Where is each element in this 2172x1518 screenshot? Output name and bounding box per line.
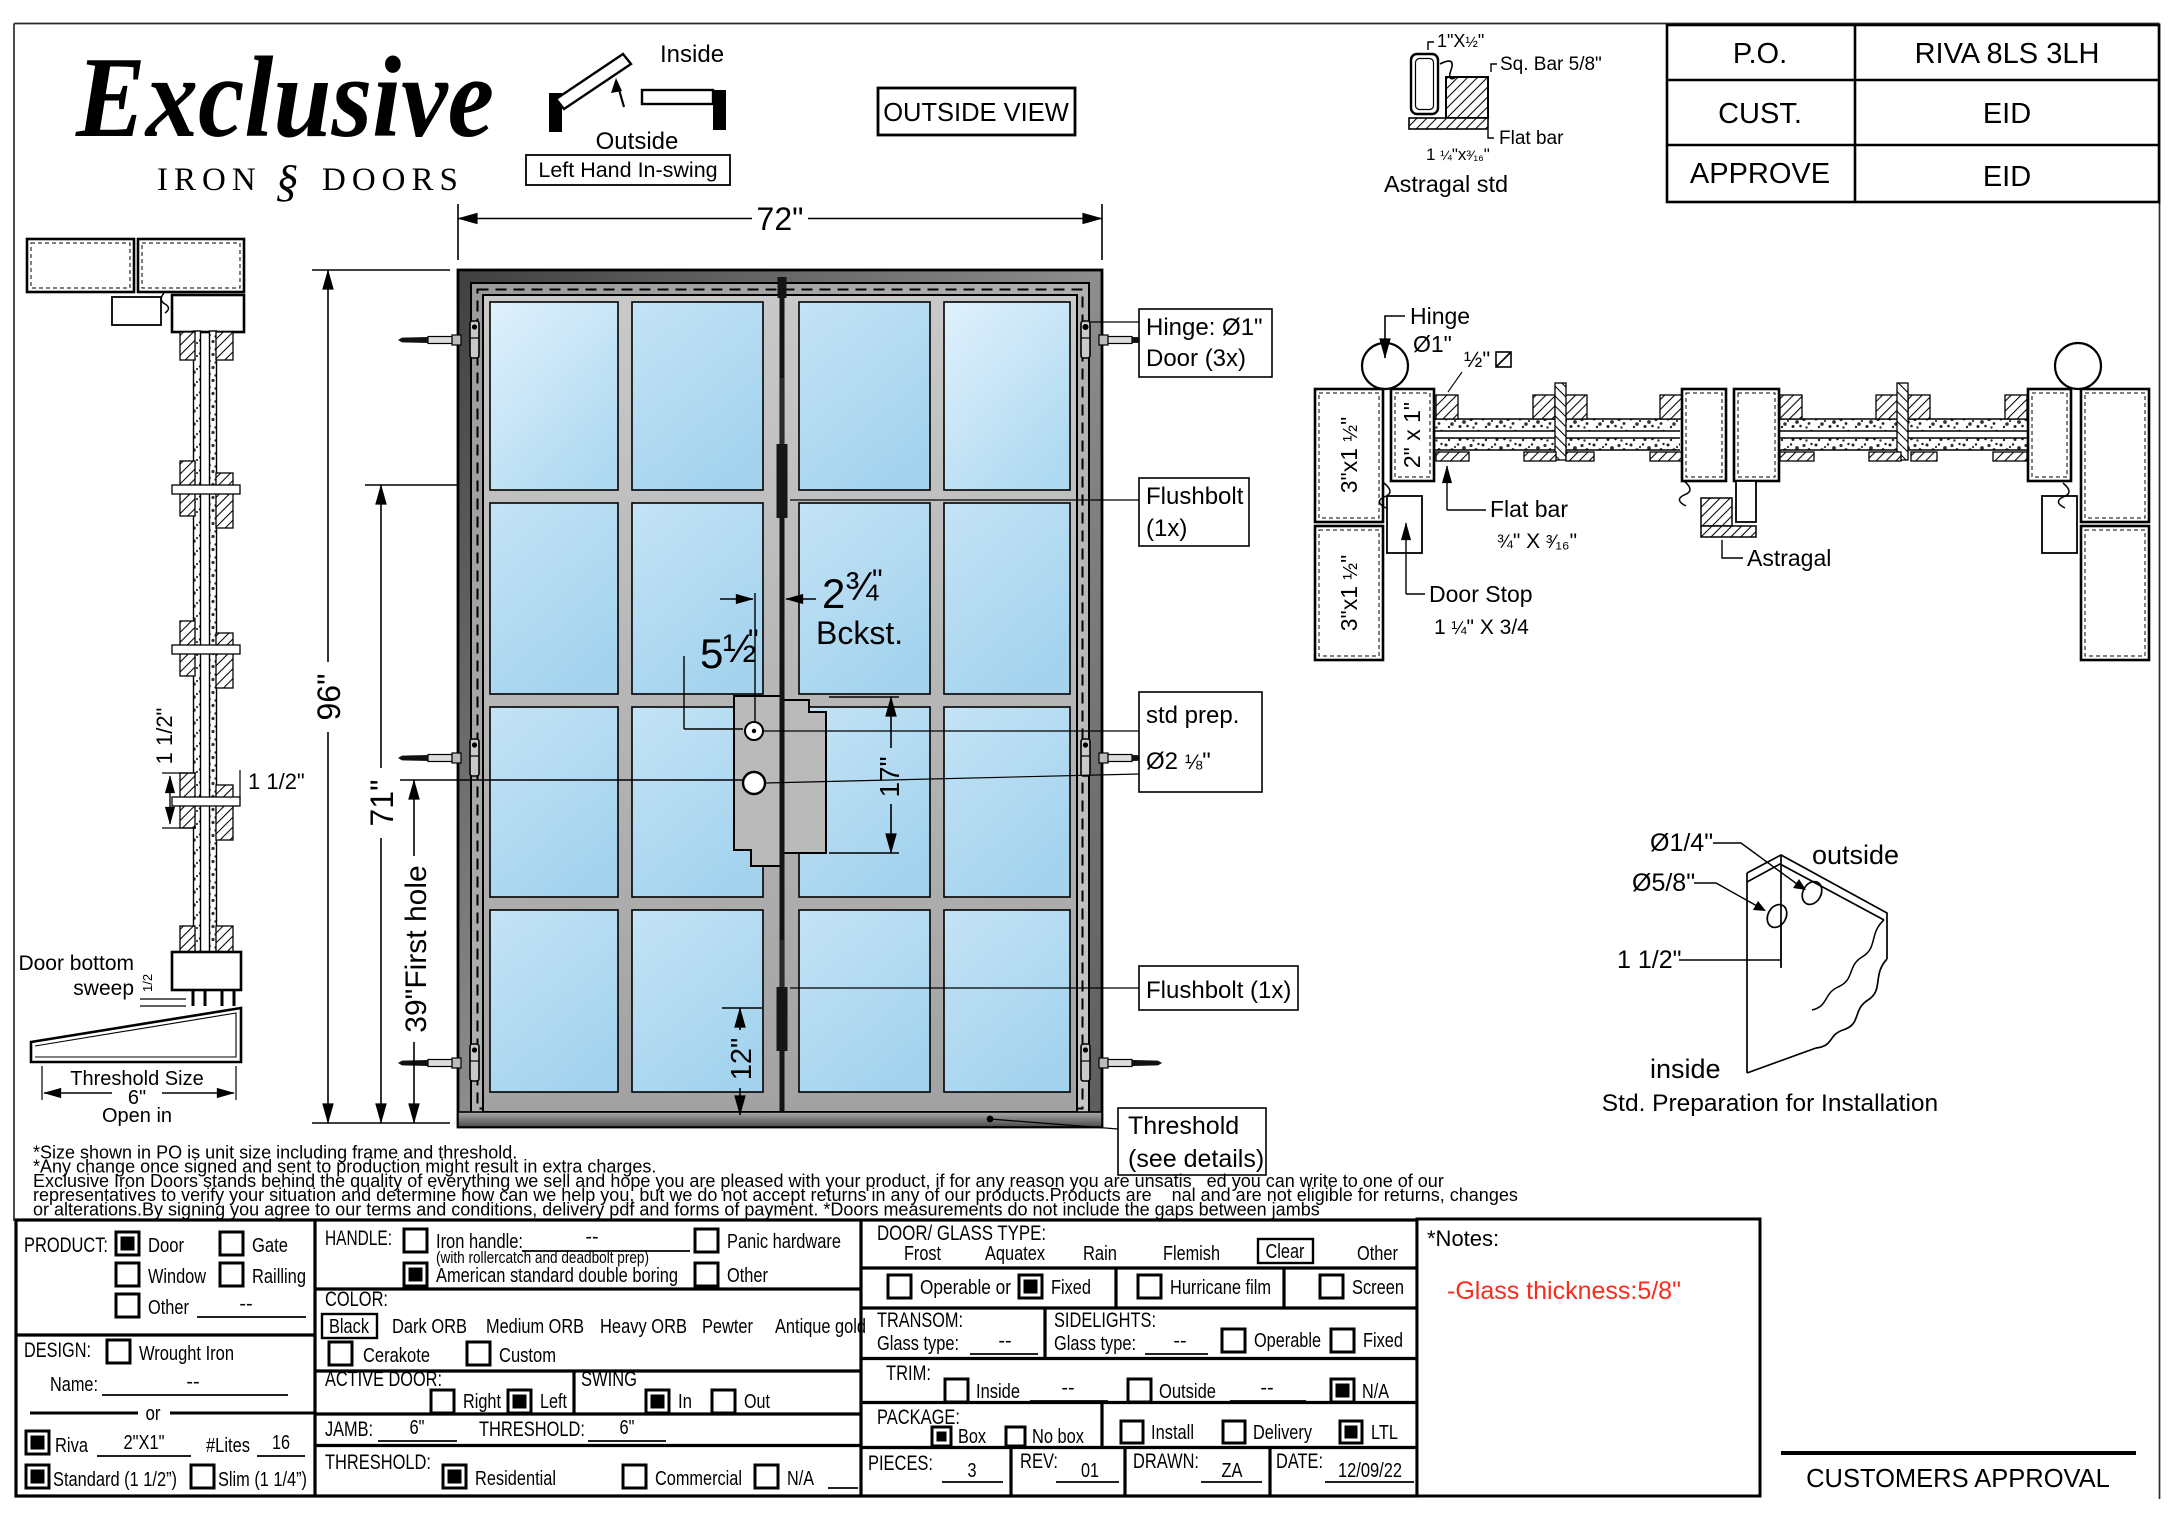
svg-text:Commercial: Commercial	[655, 1468, 742, 1490]
svg-text:TRIM:: TRIM:	[886, 1362, 931, 1385]
svg-text:EID: EID	[1983, 98, 2031, 130]
svg-text:Inside: Inside	[976, 1381, 1020, 1403]
svg-text:½": ½"	[1464, 347, 1490, 372]
svg-text:Panic hardware: Panic hardware	[727, 1231, 841, 1253]
svg-text:Clear: Clear	[1266, 1241, 1305, 1263]
svg-text:Ø2 ⅛": Ø2 ⅛"	[1146, 748, 1211, 775]
svg-text:Exclusive: Exclusive	[75, 34, 494, 162]
svg-text:1 1/2": 1 1/2"	[1617, 946, 1681, 974]
svg-text:Frost: Frost	[904, 1243, 941, 1265]
svg-text:1"X½": 1"X½"	[1437, 31, 1484, 51]
svg-text:1 ¼" X 3/4: 1 ¼" X 3/4	[1434, 616, 1529, 639]
svg-text:Operable: Operable	[1254, 1330, 1321, 1352]
svg-text:1/2: 1/2	[140, 974, 155, 992]
svg-text:Threshold: Threshold	[1128, 1112, 1239, 1140]
svg-text:Hinge: Ø1": Hinge: Ø1"	[1146, 314, 1263, 341]
svg-text:Astragal: Astragal	[1747, 545, 1831, 571]
svg-text:Flemish: Flemish	[1163, 1243, 1220, 1265]
svg-text:Hurricane film: Hurricane film	[1170, 1277, 1271, 1299]
svg-text:Sq. Bar 5/8": Sq. Bar 5/8"	[1500, 54, 1602, 75]
svg-text:outside: outside	[1812, 840, 1899, 870]
svg-text:Flat bar: Flat bar	[1499, 128, 1564, 149]
svg-text:OUTSIDE VIEW: OUTSIDE VIEW	[883, 99, 1069, 127]
svg-text:Residential: Residential	[475, 1468, 556, 1490]
svg-text:Ø1/4": Ø1/4"	[1650, 829, 1713, 857]
svg-text:--: --	[239, 1293, 252, 1315]
svg-text:1 1/2": 1 1/2"	[248, 769, 305, 794]
svg-text:No box: No box	[1032, 1426, 1084, 1448]
svg-text:Dark ORB: Dark ORB	[392, 1316, 467, 1338]
svg-text:2: 2	[822, 570, 845, 617]
svg-text:TRANSOM:: TRANSOM:	[877, 1309, 963, 1332]
svg-text:Astragal std: Astragal std	[1384, 171, 1508, 197]
svg-text:DOOR/ GLASS TYPE:: DOOR/ GLASS TYPE:	[877, 1222, 1046, 1245]
svg-text:Bckst.: Bckst.	[816, 615, 903, 651]
svg-text:Delivery: Delivery	[1253, 1422, 1312, 1444]
svg-text:Pewter: Pewter	[702, 1316, 753, 1338]
svg-text:REV:: REV:	[1020, 1450, 1058, 1473]
svg-text:(see details): (see details)	[1128, 1145, 1264, 1173]
svg-text:PRODUCT:: PRODUCT:	[24, 1234, 108, 1257]
svg-text:6": 6"	[410, 1417, 425, 1439]
svg-text:--: --	[1061, 1377, 1074, 1399]
svg-text:THRESHOLD:: THRESHOLD:	[479, 1418, 585, 1441]
svg-text:Wrought Iron: Wrought Iron	[139, 1343, 234, 1365]
svg-text:ACTIVE DOOR:: ACTIVE DOOR:	[325, 1368, 442, 1391]
svg-text:3: 3	[968, 1460, 977, 1482]
svg-text:Hinge: Hinge	[1410, 303, 1470, 329]
svg-text:72": 72"	[757, 201, 804, 237]
svg-text:Ø1": Ø1"	[1413, 331, 1452, 357]
svg-text:LTL: LTL	[1371, 1422, 1398, 1444]
svg-text:or: or	[146, 1403, 161, 1425]
svg-text:2" x 1": 2" x 1"	[1399, 402, 1425, 468]
svg-text:": "	[748, 624, 759, 657]
svg-text:12/09/22: 12/09/22	[1338, 1460, 1402, 1482]
svg-text:HANDLE:: HANDLE:	[325, 1227, 392, 1250]
svg-text:--: --	[585, 1226, 598, 1248]
svg-text:Right: Right	[463, 1391, 501, 1413]
svg-text:-Glass thickness:5/8": -Glass thickness:5/8"	[1447, 1277, 1681, 1305]
svg-text:--: --	[1173, 1330, 1186, 1352]
svg-text:--: --	[1260, 1377, 1273, 1399]
svg-text:ZA: ZA	[1222, 1460, 1244, 1482]
svg-text:96": 96"	[311, 674, 347, 721]
svg-text:1 ¼"x³⁄₁₆": 1 ¼"x³⁄₁₆"	[1426, 145, 1490, 164]
svg-text:Fixed: Fixed	[1363, 1330, 1403, 1352]
svg-text:5: 5	[700, 630, 723, 677]
svg-text:Open in: Open in	[102, 1105, 172, 1127]
svg-text:Fixed: Fixed	[1051, 1277, 1091, 1299]
svg-text:6": 6"	[620, 1417, 635, 1439]
svg-text:3"x1 ½": 3"x1 ½"	[1336, 555, 1362, 632]
svg-text:Flushbolt: Flushbolt	[1146, 483, 1244, 510]
svg-text:COLOR:: COLOR:	[325, 1288, 388, 1311]
svg-text:Box: Box	[958, 1426, 986, 1448]
svg-text:Antique gold: Antique gold	[775, 1316, 866, 1338]
svg-text:SIDELIGHTS:: SIDELIGHTS:	[1054, 1309, 1156, 1332]
svg-text:17": 17"	[874, 756, 905, 797]
svg-text:RIVA 8LS 3LH: RIVA 8LS 3LH	[1915, 38, 2100, 70]
svg-text:Flushbolt (1x): Flushbolt (1x)	[1146, 977, 1291, 1004]
svg-text:DATE:: DATE:	[1276, 1450, 1323, 1473]
svg-text:THRESHOLD:: THRESHOLD:	[325, 1451, 431, 1474]
svg-text:¾" X ³⁄₁₆": ¾" X ³⁄₁₆"	[1497, 530, 1577, 553]
svg-text:Window: Window	[148, 1266, 206, 1288]
svg-text:Inside: Inside	[660, 41, 724, 68]
svg-text:Screen: Screen	[1352, 1277, 1404, 1299]
svg-text:Riva: Riva	[55, 1435, 89, 1457]
svg-text:Cerakote: Cerakote	[363, 1345, 430, 1367]
svg-text:Left: Left	[540, 1391, 567, 1413]
svg-text:Standard (1 1/2”): Standard (1 1/2”)	[53, 1469, 177, 1491]
svg-text:Custom: Custom	[499, 1345, 556, 1367]
svg-text:01: 01	[1081, 1460, 1099, 1482]
svg-text:PIECES:: PIECES:	[868, 1452, 933, 1475]
svg-text:§: §	[276, 155, 299, 206]
svg-text:Name:: Name:	[50, 1374, 98, 1396]
svg-text:3"x1 ½": 3"x1 ½"	[1336, 417, 1362, 494]
svg-text:Rain: Rain	[1083, 1243, 1117, 1265]
svg-text:EID: EID	[1983, 161, 2031, 193]
svg-text:Left Hand In-swing: Left Hand In-swing	[538, 158, 717, 182]
svg-text:Out: Out	[744, 1391, 770, 1413]
svg-text:Other: Other	[727, 1265, 768, 1287]
svg-text:P.O.: P.O.	[1733, 38, 1787, 70]
svg-text:JAMB:: JAMB:	[325, 1418, 373, 1441]
svg-text:Door Stop: Door Stop	[1429, 581, 1533, 607]
svg-text:--: --	[998, 1330, 1011, 1352]
svg-text:or alterations.By signing you: or alterations.By signing you agree to o…	[33, 1199, 1320, 1219]
svg-text:Glass type:: Glass type:	[877, 1333, 959, 1355]
svg-text:Glass type:: Glass type:	[1054, 1333, 1136, 1355]
svg-text:Medium ORB: Medium ORB	[486, 1316, 584, 1338]
svg-text:IRON: IRON	[157, 162, 262, 198]
svg-text:Outside: Outside	[596, 128, 679, 155]
svg-text:CUST.: CUST.	[1718, 98, 1802, 130]
svg-text:#Lites: #Lites	[206, 1435, 250, 1457]
svg-text:": "	[872, 564, 883, 597]
svg-text:*Notes:: *Notes:	[1427, 1226, 1499, 1251]
svg-text:Std. Preparation for Installat: Std. Preparation for Installation	[1602, 1090, 1938, 1117]
svg-text:Black: Black	[329, 1316, 370, 1338]
svg-text:Aquatex: Aquatex	[985, 1243, 1045, 1265]
svg-text:CUSTOMERS APPROVAL: CUSTOMERS APPROVAL	[1806, 1465, 2110, 1493]
svg-text:Flat bar: Flat bar	[1490, 496, 1568, 522]
svg-text:DOORS: DOORS	[322, 162, 464, 198]
svg-text:Door: Door	[148, 1235, 184, 1257]
svg-text:N/A: N/A	[1362, 1381, 1390, 1403]
svg-text:12": 12"	[726, 1038, 758, 1081]
svg-text:(1x): (1x)	[1146, 515, 1187, 542]
svg-text:Slim (1 1/4”): Slim (1 1/4”)	[218, 1469, 307, 1491]
svg-text:1 1/2": 1 1/2"	[152, 708, 177, 765]
svg-text:N/A: N/A	[787, 1468, 815, 1490]
svg-text:Gate: Gate	[252, 1235, 288, 1257]
svg-text:sweep: sweep	[73, 977, 134, 1000]
svg-text:Door bottom: Door bottom	[18, 952, 134, 975]
svg-text:In: In	[678, 1391, 692, 1413]
svg-text:--: --	[186, 1371, 199, 1393]
svg-text:APPROVE: APPROVE	[1690, 158, 1830, 190]
svg-text:American standard double borin: American standard double boring	[436, 1265, 678, 1287]
svg-text:Other: Other	[1357, 1243, 1398, 1265]
svg-text:16: 16	[272, 1432, 290, 1454]
svg-text:SWING: SWING	[581, 1368, 637, 1391]
svg-text:DRAWN:: DRAWN:	[1133, 1450, 1199, 1473]
svg-text:Outside: Outside	[1159, 1381, 1216, 1403]
svg-text:inside: inside	[1650, 1054, 1721, 1084]
svg-text:71": 71"	[364, 780, 400, 827]
svg-text:Other: Other	[148, 1297, 189, 1319]
svg-text:Install: Install	[1151, 1422, 1194, 1444]
svg-text:DESIGN:: DESIGN:	[24, 1339, 91, 1362]
svg-text:std prep.: std prep.	[1146, 702, 1239, 729]
svg-text:Ø5/8": Ø5/8"	[1632, 869, 1695, 897]
svg-text:2"X1": 2"X1"	[124, 1432, 165, 1454]
svg-text:Railling: Railling	[252, 1266, 306, 1288]
svg-text:Operable or: Operable or	[920, 1277, 1011, 1299]
svg-text:39"First hole: 39"First hole	[400, 865, 433, 1032]
svg-text:Door (3x): Door (3x)	[1146, 345, 1246, 372]
svg-text:Heavy ORB: Heavy ORB	[600, 1316, 687, 1338]
